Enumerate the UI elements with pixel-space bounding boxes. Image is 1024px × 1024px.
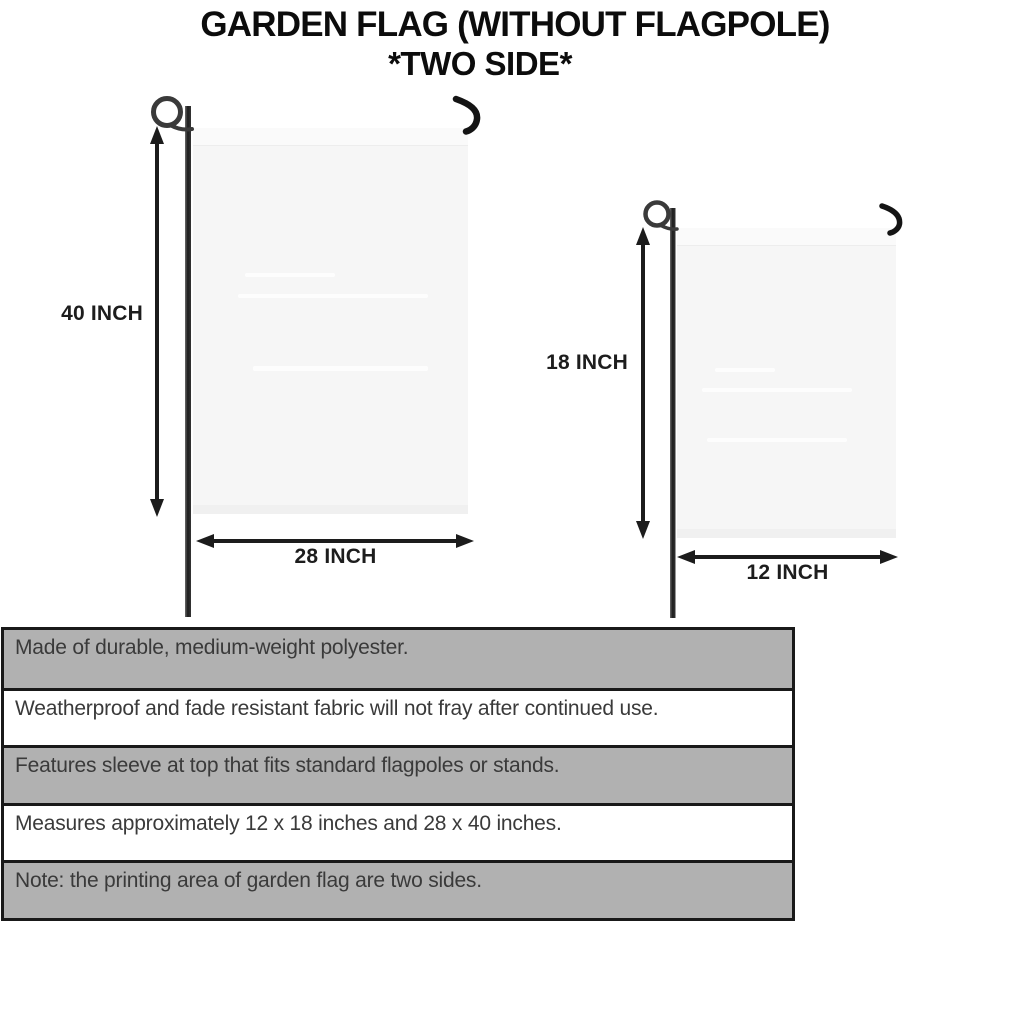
features-table: Made of durable, medium-weight polyester… xyxy=(1,627,795,921)
large-flag-hook-icon xyxy=(456,99,477,132)
arrow-up-icon xyxy=(636,227,650,245)
large-flag-sleeve xyxy=(193,128,468,146)
feature-row: Made of durable, medium-weight polyester… xyxy=(4,630,792,688)
large-flag xyxy=(193,128,468,514)
large-flagpole xyxy=(185,106,191,617)
large-pole-loop-tail xyxy=(170,125,192,130)
feature-row: Measures approximately 12 x 18 inches an… xyxy=(4,803,792,861)
fabric-highlight xyxy=(245,273,335,277)
fabric-highlight xyxy=(702,388,852,392)
large-height-label: 40 INCH xyxy=(0,302,143,326)
small-flag-hem xyxy=(677,529,896,538)
small-width-label: 12 INCH xyxy=(678,561,897,585)
feature-row: Note: the printing area of garden flag a… xyxy=(4,860,792,918)
large-width-label: 28 INCH xyxy=(197,545,474,569)
product-infographic: GARDEN FLAG (WITHOUT FLAGPOLE) *TWO SIDE… xyxy=(0,0,1024,1024)
small-flag xyxy=(677,228,896,538)
fabric-highlight xyxy=(238,294,428,298)
fabric-highlight xyxy=(707,438,847,442)
feature-row: Features sleeve at top that fits standar… xyxy=(4,745,792,803)
feature-row: Weatherproof and fade resistant fabric w… xyxy=(4,688,792,746)
arrow-up-icon xyxy=(150,126,164,144)
page-subtitle: *TWO SIDE* xyxy=(0,45,960,83)
small-pole-loop-icon xyxy=(646,203,669,226)
large-flag-hem xyxy=(193,505,468,514)
small-flag-sleeve xyxy=(677,228,896,246)
small-height-label: 18 INCH xyxy=(500,351,628,375)
page-title: GARDEN FLAG (WITHOUT FLAGPOLE) xyxy=(0,5,1024,45)
fabric-highlight xyxy=(715,368,775,372)
arrow-down-icon xyxy=(150,499,164,517)
large-pole-loop-icon xyxy=(154,99,181,126)
arrow-down-icon xyxy=(636,521,650,539)
fabric-highlight xyxy=(253,366,428,371)
small-flagpole xyxy=(670,208,676,618)
small-pole-loop-tail xyxy=(660,225,677,229)
